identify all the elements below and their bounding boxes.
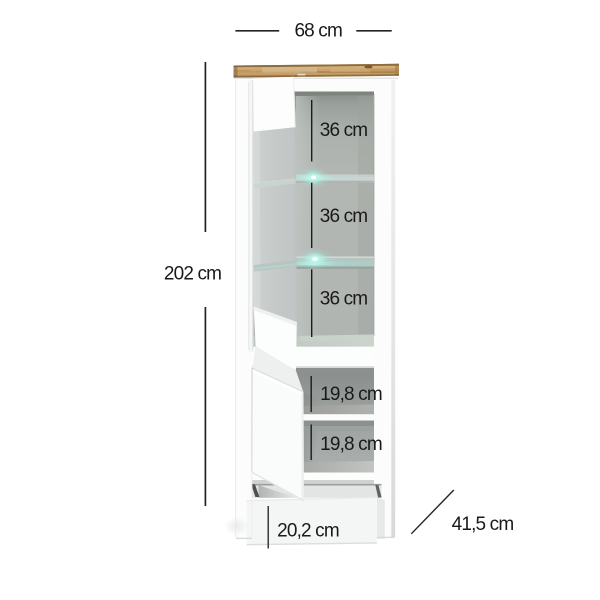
svg-text:68 cm: 68 cm [294, 21, 342, 42]
svg-text:20,2 cm: 20,2 cm [277, 521, 339, 542]
svg-text:36 cm: 36 cm [320, 206, 368, 227]
svg-text:19,8 cm: 19,8 cm [320, 434, 382, 455]
svg-text:41,5 cm: 41,5 cm [452, 514, 514, 535]
svg-text:36 cm: 36 cm [320, 120, 368, 141]
svg-text:36 cm: 36 cm [320, 289, 368, 310]
svg-text:202 cm: 202 cm [164, 264, 221, 285]
svg-text:19,8 cm: 19,8 cm [320, 384, 382, 405]
